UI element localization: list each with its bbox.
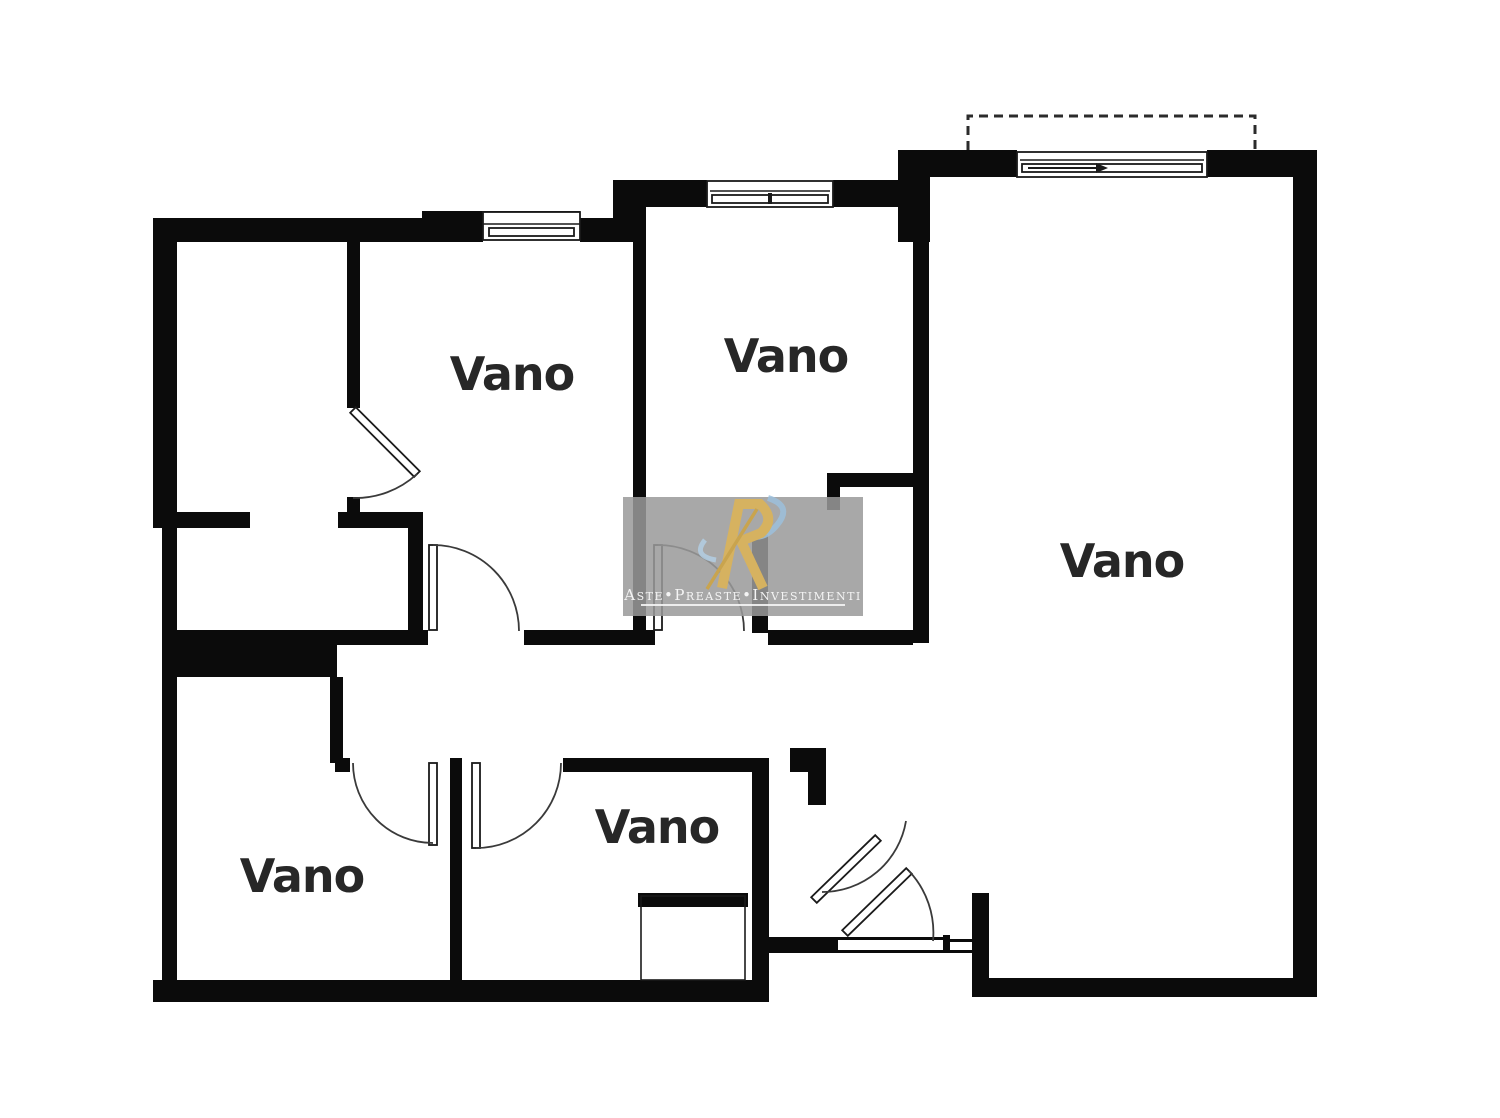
window-top-middle: [707, 181, 833, 207]
window-top-left: [483, 212, 580, 240]
floor-plan-svg: Vano Vano Vano Vano Vano Aste•Preaste•In…: [0, 0, 1500, 1118]
room-label-bottom-middle: Vano: [595, 800, 719, 854]
door-leaf: [472, 763, 480, 848]
room-label-top-middle: Vano: [724, 329, 848, 383]
door-leaf: [429, 545, 437, 630]
window-sliding-top-right: [1017, 152, 1207, 177]
watermark-underline: [641, 604, 845, 606]
watermark-brand-text: Aste•Preaste•Investimenti: [623, 586, 862, 604]
room-label-right: Vano: [1060, 534, 1184, 588]
room-label-bottom-left: Vano: [240, 849, 364, 903]
door-leaf: [429, 763, 437, 845]
watermark: Aste•Preaste•Investimenti: [623, 497, 863, 616]
room-label-top-left: Vano: [450, 347, 574, 401]
floor-plan-page: Vano Vano Vano Vano Vano Aste•Preaste•In…: [0, 0, 1500, 1118]
